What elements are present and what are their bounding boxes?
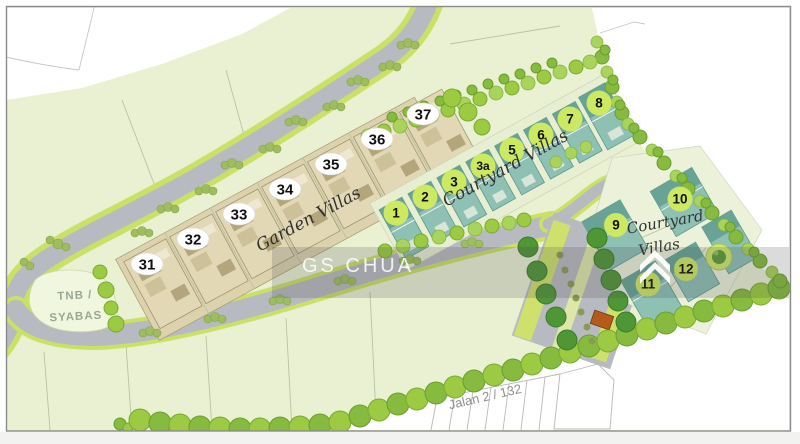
lot-31: 31 bbox=[139, 256, 156, 273]
site-plan-drawing: 31 32 33 34 35 36 37 1 2 3 3a 5 bbox=[0, 0, 800, 444]
bottom-margin bbox=[0, 432, 800, 444]
watermark-text: GS CHUA bbox=[302, 255, 414, 277]
lot-2: 2 bbox=[421, 190, 429, 205]
lot-10: 10 bbox=[672, 192, 687, 207]
lot-32: 32 bbox=[185, 231, 202, 248]
lot-35: 35 bbox=[323, 156, 340, 173]
site-plan: 31 32 33 34 35 36 37 1 2 3 3a 5 bbox=[0, 0, 800, 444]
lot-7: 7 bbox=[566, 112, 574, 127]
lot-1: 1 bbox=[392, 206, 400, 221]
lot-36: 36 bbox=[369, 131, 386, 148]
lot-33: 33 bbox=[231, 206, 248, 223]
watermark: GS CHUA bbox=[272, 247, 789, 298]
lot-34: 34 bbox=[277, 181, 294, 198]
lot-37: 37 bbox=[415, 106, 432, 123]
utility-lot-label-line1: TNB / bbox=[57, 289, 93, 303]
lot-8: 8 bbox=[595, 96, 603, 111]
lot-9: 9 bbox=[612, 218, 620, 233]
